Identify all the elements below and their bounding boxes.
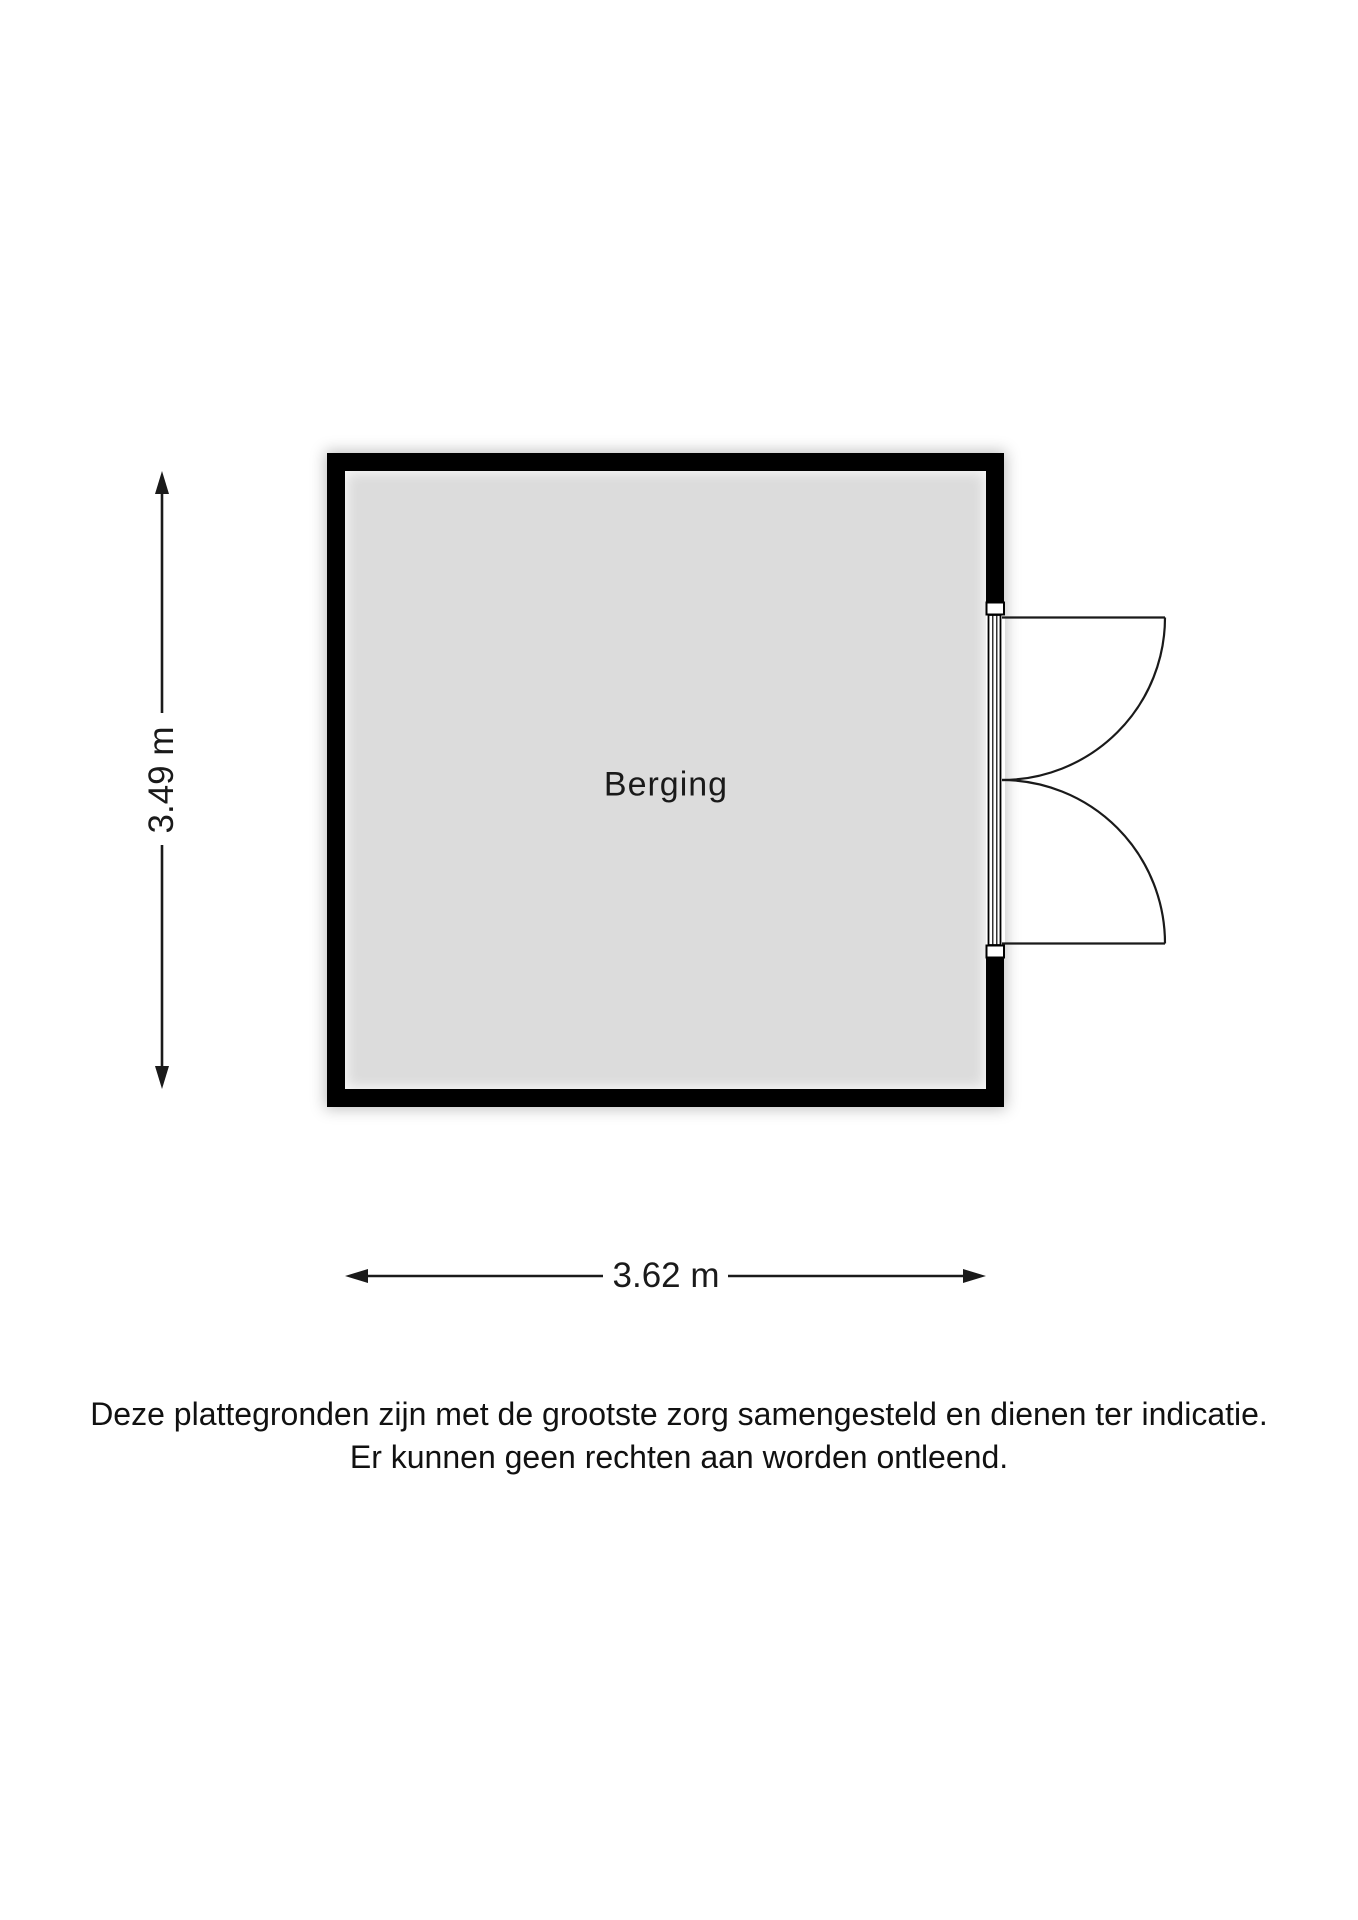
floorplan-page: Berging 3.49 m 3.62 m Deze plattegronden…: [0, 0, 1358, 1920]
door-double-swing: [1002, 618, 1165, 944]
arrow-right-icon: [963, 1269, 986, 1283]
door-swing-arc-bottom: [1002, 780, 1165, 944]
door-jamb-top: [987, 603, 1005, 615]
width-dimension-label: 3.62 m: [613, 1256, 720, 1296]
height-dimension-label: 3.49 m: [142, 727, 182, 834]
arrow-left-icon: [345, 1269, 368, 1283]
door-frame: [989, 615, 1001, 945]
arrow-down-icon: [155, 1066, 169, 1089]
disclaimer-text: Deze plattegronden zijn met de grootste …: [0, 1393, 1358, 1479]
arrow-up-icon: [155, 471, 169, 494]
disclaimer-line-2: Er kunnen geen rechten aan worden ontlee…: [0, 1436, 1358, 1479]
door-swing-arc-top: [1002, 618, 1165, 781]
room-label: Berging: [604, 766, 728, 805]
plan-annotations: [0, 0, 1358, 1920]
disclaimer-line-1: Deze plattegronden zijn met de grootste …: [0, 1393, 1358, 1436]
door-jamb-bottom: [987, 946, 1005, 958]
